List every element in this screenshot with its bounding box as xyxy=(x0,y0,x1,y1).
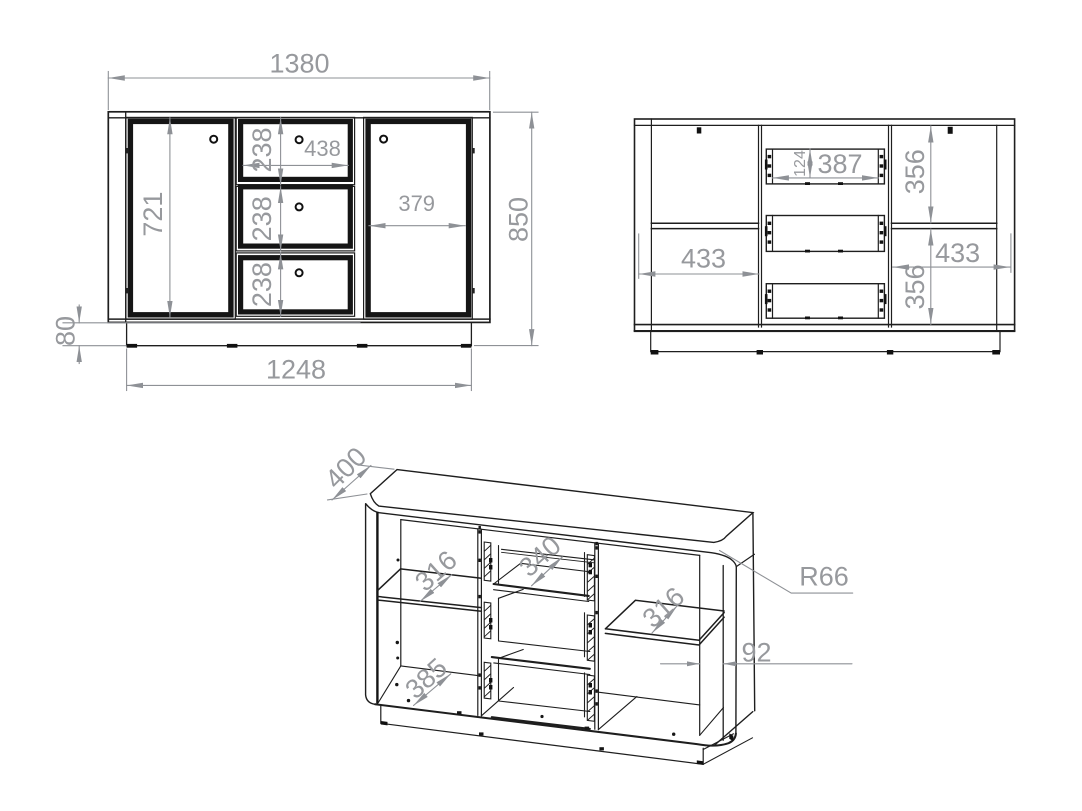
svg-text:385: 385 xyxy=(399,652,453,704)
svg-text:316: 316 xyxy=(637,581,691,633)
svg-text:238: 238 xyxy=(247,262,277,307)
svg-text:438: 438 xyxy=(304,136,341,161)
svg-text:433: 433 xyxy=(681,243,726,273)
svg-text:1248: 1248 xyxy=(266,355,326,385)
svg-text:238: 238 xyxy=(247,127,277,172)
svg-text:387: 387 xyxy=(817,149,862,179)
svg-text:356: 356 xyxy=(900,149,930,194)
svg-text:1380: 1380 xyxy=(269,49,329,79)
svg-text:238: 238 xyxy=(247,196,277,241)
svg-text:379: 379 xyxy=(398,191,435,216)
svg-text:80: 80 xyxy=(51,316,81,346)
svg-text:356: 356 xyxy=(900,264,930,309)
svg-text:850: 850 xyxy=(504,197,534,242)
svg-text:124: 124 xyxy=(792,150,809,177)
svg-text:R66: R66 xyxy=(799,562,849,592)
svg-text:92: 92 xyxy=(741,638,771,668)
svg-text:316: 316 xyxy=(409,545,463,597)
svg-text:721: 721 xyxy=(138,192,168,237)
svg-text:400: 400 xyxy=(319,441,372,494)
svg-text:433: 433 xyxy=(935,238,980,268)
